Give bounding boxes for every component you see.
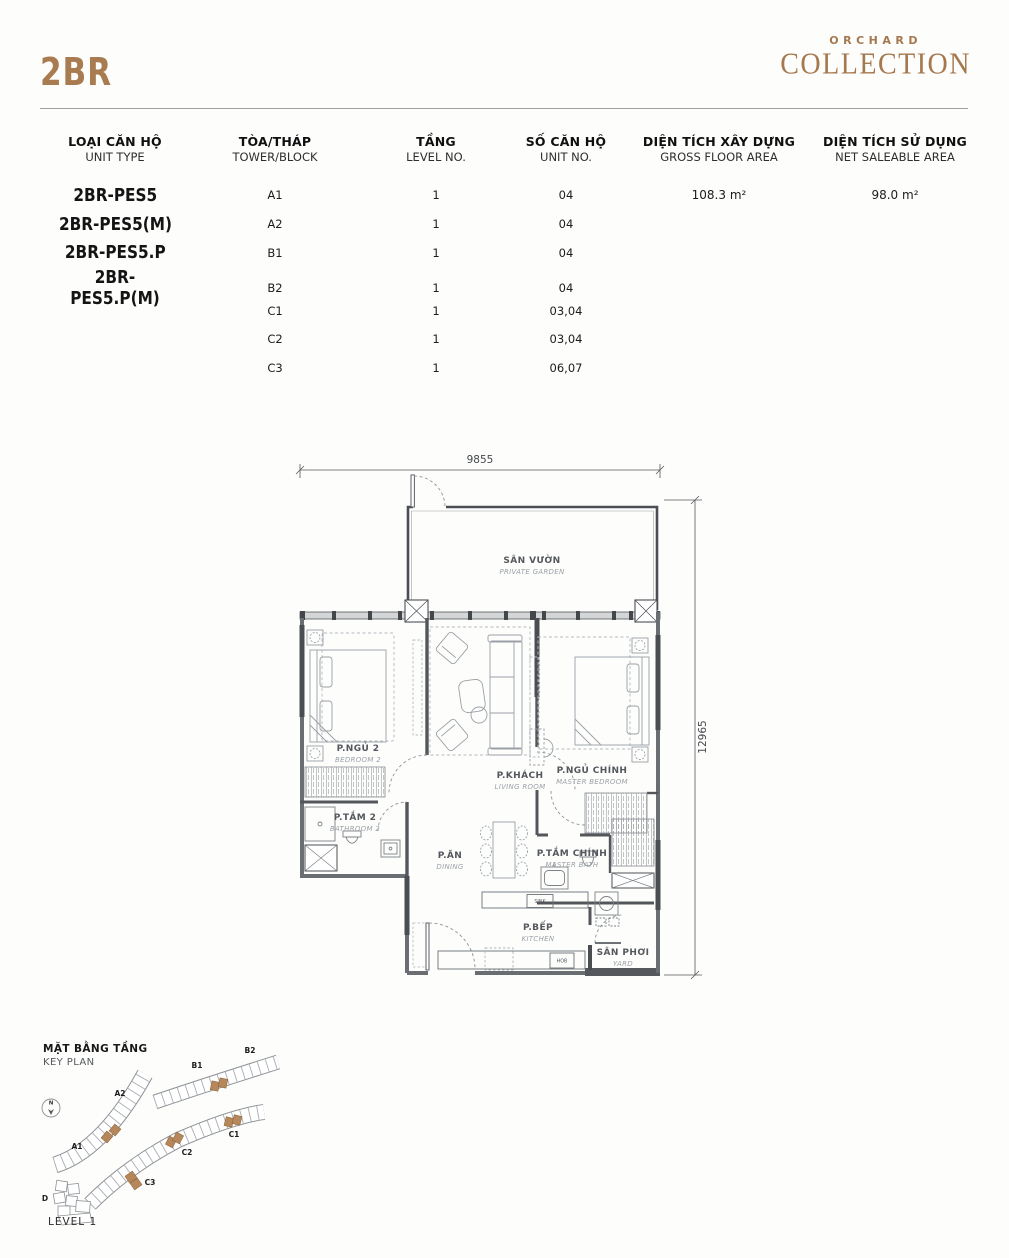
svg-text:N: N [49, 1101, 54, 1107]
block-label-c1: C1 [229, 1130, 240, 1139]
living-furniture [413, 627, 530, 755]
col-unit-no: SỐ CĂN HỘUNIT NO. [512, 134, 620, 164]
label-garden-en: PRIVATE GARDEN [500, 568, 565, 576]
label-living-en: LIVING ROOM [495, 783, 546, 791]
block-label-c2: C2 [182, 1148, 193, 1157]
floor-plan: 9855 12965 [280, 445, 720, 1005]
rug-icon [322, 633, 394, 741]
label-yard-en: YARD [613, 960, 633, 968]
label-master-en: MASTER BEDROOM [556, 778, 628, 786]
col-gfa: DIỆN TÍCH XÂY DỰNGGROSS FLOOR AREA [620, 134, 818, 164]
dining-set-icon [481, 822, 528, 878]
yard-fixtures [595, 892, 619, 926]
north-compass-icon: N [42, 1099, 60, 1117]
rug-icon [430, 627, 530, 755]
block-label-a1: A1 [71, 1142, 82, 1151]
bed-icon [575, 657, 649, 745]
bed-icon [310, 650, 386, 742]
table-row: 2BR-PES5.P(M)B2104 [40, 267, 972, 296]
linen-closet [612, 819, 654, 888]
block-band-a [55, 1074, 145, 1165]
block-label-c3: C3 [145, 1178, 156, 1187]
bedroom2-door-arc [389, 755, 427, 793]
master-furniture [530, 637, 649, 833]
rug-icon [538, 637, 630, 749]
col-nsa: DIỆN TÍCH SỬ DỤNGNET SALEABLE AREA [818, 134, 972, 164]
table-row: 2BR-PES5(M)A2104 [40, 210, 972, 239]
wardrobe-icon [305, 767, 385, 797]
table-header-row: LOẠI CĂN HỘUNIT TYPE TÒA/THÁPTOWER/BLOCK… [40, 134, 972, 164]
sink-label: SINK [534, 899, 546, 905]
dim-height-label: 12965 [697, 720, 709, 753]
header-divider [40, 108, 968, 109]
label-living: P.KHÁCH [497, 769, 544, 781]
label-kitchen: P.BẾP [523, 920, 553, 933]
shower-icon [305, 807, 335, 841]
col-tower: TÒA/THÁPTOWER/BLOCK [190, 134, 360, 164]
unit-table: LOẠI CĂN HỘUNIT TYPE TÒA/THÁPTOWER/BLOCK… [40, 134, 972, 383]
side-table-icon [471, 707, 487, 723]
desk-icon [530, 729, 553, 765]
shaft-icon [612, 873, 654, 888]
label-bedroom2: P.NGỦ 2 [337, 741, 380, 754]
block-label-b2: B2 [245, 1046, 256, 1055]
sofa-icon [488, 635, 522, 755]
hob-label: HOB [557, 959, 568, 965]
masterbath-door-arc [551, 791, 585, 825]
shelf-icon [413, 640, 422, 735]
armchair-icon [435, 718, 469, 752]
table-row: 2BR-PES5.PB1104 [40, 239, 972, 268]
block-label-b1: B1 [192, 1061, 203, 1070]
label-masterbath-en: MASTER BATH [546, 861, 599, 869]
coffee-table-icon [458, 678, 486, 713]
entry-door [413, 923, 475, 970]
block-band-b [155, 1062, 278, 1102]
shaft-icon [305, 845, 337, 871]
label-yard: SÂN PHƠI [597, 946, 650, 958]
keyplan-level-label: LEVEL 1 [48, 1216, 97, 1228]
table-body: 2BR-PES5A1104108.3 m²98.0 m² 2BR-PES5(M)… [40, 181, 972, 383]
label-bedroom2-en: BEDROOM 2 [335, 756, 381, 764]
label-kitchen-en: KITCHEN [522, 935, 555, 943]
garden-door [411, 475, 445, 507]
table-row: 2BR-PES5A1104108.3 m²98.0 m² [40, 181, 972, 210]
table-row: C2103,04 [40, 325, 972, 354]
label-bathroom2: P.TẮM 2 [334, 810, 377, 823]
bathroom2-door-arc [378, 802, 407, 831]
block-label-a2: A2 [114, 1089, 125, 1098]
label-garden: SÂN VƯỜN [503, 554, 560, 566]
block-label-d: D [42, 1194, 48, 1203]
bedroom2-furniture [305, 630, 394, 797]
basin-icon [381, 840, 400, 857]
keyplan-map: N A1 A2 [28, 1038, 308, 1238]
window-band [300, 611, 660, 620]
brand-logo: ORCHARD COLLECTION [780, 34, 971, 81]
brand-line1: ORCHARD [780, 34, 971, 47]
brand-line2: COLLECTION [780, 48, 971, 83]
armchair-icon [435, 631, 469, 665]
col-level: TẦNGLEVEL NO. [360, 134, 512, 164]
table-row: C1103,04 [40, 296, 972, 325]
label-dining-en: DINING [436, 863, 463, 871]
label-master: P.NGỦ CHÍNH [557, 763, 628, 776]
label-dining: P.ĂN [438, 849, 462, 861]
dim-width-label: 9855 [467, 454, 494, 466]
page-title: 2BR [40, 50, 128, 94]
label-bathroom2-en: BATHROOM 2 [330, 825, 380, 833]
col-unit-type: LOẠI CĂN HỘUNIT TYPE [40, 134, 190, 164]
label-masterbath: P.TẮM CHÍNH [537, 846, 608, 859]
table-row: C3106,07 [40, 354, 972, 383]
dimension-top [296, 464, 664, 478]
